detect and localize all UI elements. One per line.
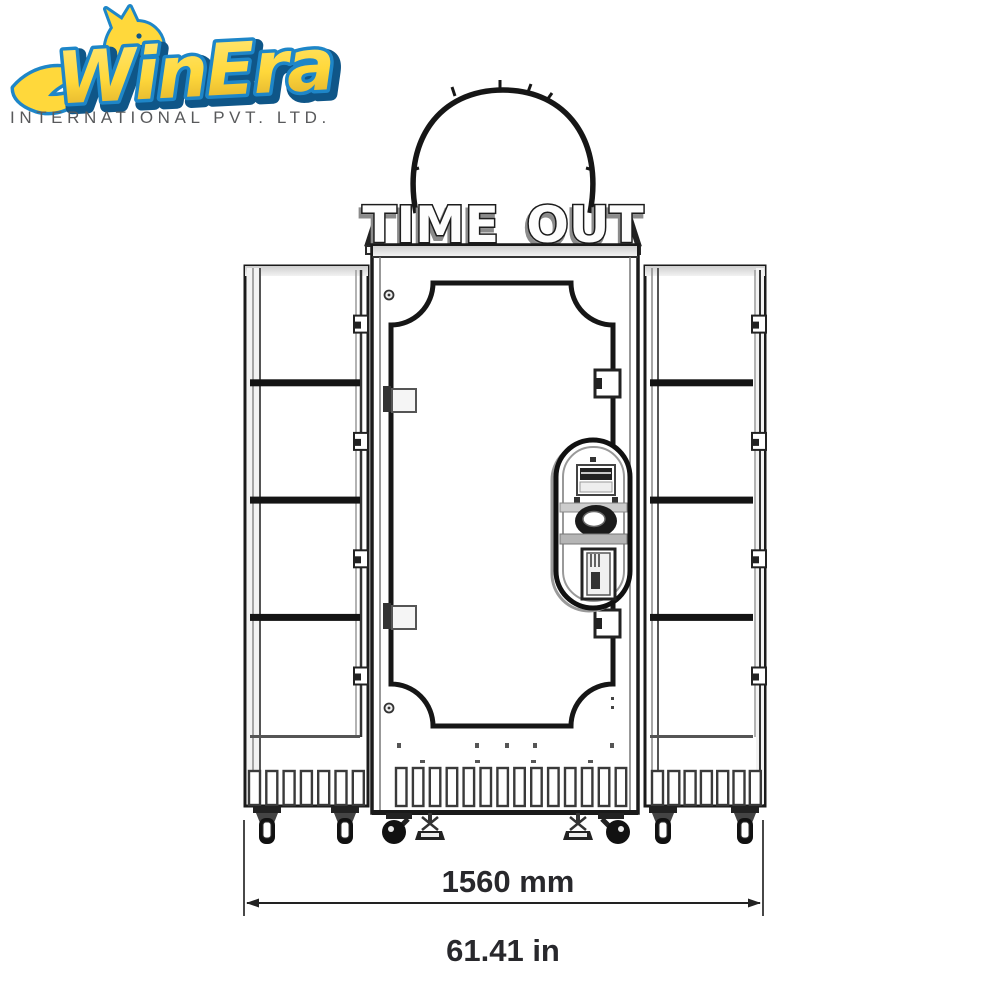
door-hinge-bottom xyxy=(383,603,416,629)
vent-slot xyxy=(336,771,347,805)
shelf-divider xyxy=(250,614,360,621)
caster-wheel xyxy=(731,806,759,844)
vent-slot xyxy=(701,771,712,805)
shelf-divider xyxy=(250,497,360,504)
coin-return[interactable] xyxy=(582,549,615,599)
vent-slot xyxy=(266,771,277,805)
dimension-mm-label: 1560 mm xyxy=(442,864,575,899)
vent-slot xyxy=(685,771,696,805)
coin-entry[interactable] xyxy=(575,505,617,537)
product-drawing-page: WinEra WinEra INTERNATIONAL PVT. LTD. TI… xyxy=(0,0,1000,1000)
dimension-annotation: 1560 mm 61.41 in xyxy=(244,820,763,968)
vent-slot xyxy=(652,771,663,805)
shelf-divider xyxy=(650,614,753,621)
leveling-foot xyxy=(563,813,593,840)
vent-slot xyxy=(599,768,610,806)
vent-slot xyxy=(396,768,407,806)
arch-handle xyxy=(412,80,593,213)
technical-drawing: WinEra WinEra INTERNATIONAL PVT. LTD. TI… xyxy=(0,0,1000,1000)
vent-slot xyxy=(301,771,312,805)
swivel-caster-black xyxy=(598,813,630,844)
door-hinge-top xyxy=(383,386,416,412)
shelf-divider xyxy=(250,379,360,386)
logo-brand: WinEra xyxy=(54,22,335,120)
caster-wheel xyxy=(253,806,281,844)
winera-logo: WinEra WinEra INTERNATIONAL PVT. LTD. xyxy=(10,7,339,127)
dim-arrow-right xyxy=(748,899,761,908)
caster-wheel xyxy=(649,806,677,844)
bill-acceptor[interactable] xyxy=(577,465,615,495)
leveling-foot xyxy=(415,813,445,840)
vent-slot xyxy=(717,771,728,805)
vent-slot xyxy=(616,768,627,806)
vent-slot xyxy=(447,768,458,806)
vent-slot xyxy=(284,771,295,805)
arch-curve xyxy=(413,90,593,213)
door-latch-top xyxy=(595,370,620,397)
vent-slot xyxy=(734,771,745,805)
vent-slot xyxy=(750,771,761,805)
shelf-divider xyxy=(650,379,753,386)
logo-subtitle: INTERNATIONAL PVT. LTD. xyxy=(10,108,331,127)
control-panel xyxy=(552,440,630,611)
vent-slot xyxy=(249,771,260,805)
dimension-in-label: 61.41 in xyxy=(446,933,560,968)
swivel-caster-black xyxy=(382,813,412,844)
caster-wheel xyxy=(331,806,359,844)
vent-slot xyxy=(514,768,525,806)
vent-slot xyxy=(668,771,679,805)
vent-slot xyxy=(413,768,424,806)
vent-slot xyxy=(464,768,475,806)
dim-arrow-left xyxy=(246,899,259,908)
vent-slot xyxy=(582,768,593,806)
right-cabinet-vents xyxy=(652,771,761,805)
vent-slot xyxy=(481,768,492,806)
shelf-divider xyxy=(650,497,753,504)
left-cabinet-vents xyxy=(249,771,364,805)
left-cabinet xyxy=(245,266,368,806)
vent-slot xyxy=(497,768,508,806)
vent-slot xyxy=(353,771,364,805)
vent-slot xyxy=(531,768,542,806)
vent-slot xyxy=(430,768,441,806)
vent-slot xyxy=(548,768,559,806)
vent-slot xyxy=(318,771,329,805)
door-latch-bottom xyxy=(595,610,620,637)
right-cabinet xyxy=(645,266,766,806)
vent-slot xyxy=(565,768,576,806)
